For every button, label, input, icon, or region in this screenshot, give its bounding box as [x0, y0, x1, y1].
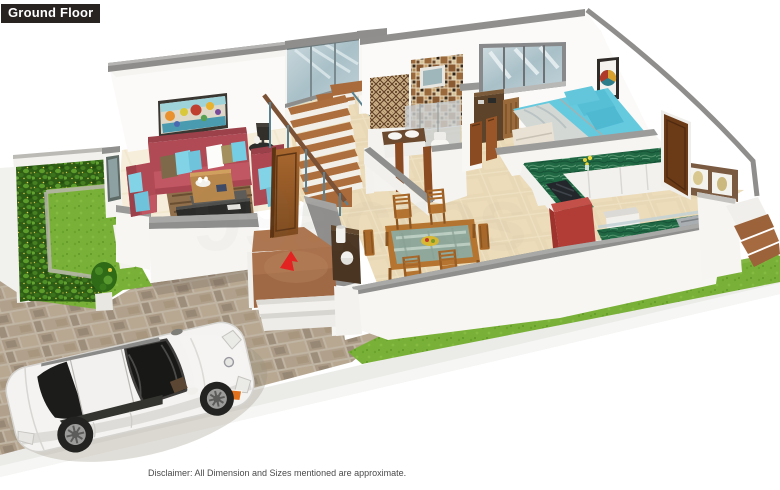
svg-text:99acres: 99acres: [192, 170, 527, 270]
